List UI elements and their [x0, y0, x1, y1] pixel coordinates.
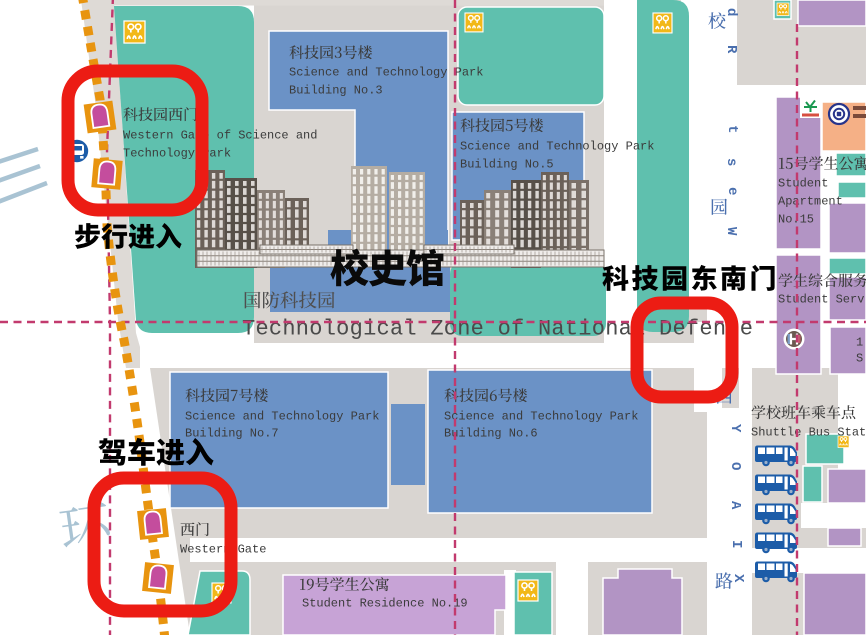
svg-text:Western Gate: Western Gate — [180, 543, 266, 557]
svg-text:Student Serv: Student Serv — [778, 293, 864, 307]
svg-text:Y: Y — [727, 424, 743, 433]
svg-text:S: S — [856, 352, 863, 366]
svg-text:I: I — [728, 540, 744, 548]
svg-text:1: 1 — [856, 336, 863, 350]
svg-text:Science and Technology Park: Science and Technology Park — [444, 410, 638, 424]
svg-text:Student: Student — [778, 177, 828, 191]
svg-text:Apartment: Apartment — [778, 195, 843, 209]
svg-text:Western Gate of Science and: Western Gate of Science and — [123, 129, 317, 143]
svg-text:Shuttle Bus Stat: Shuttle Bus Stat — [751, 426, 866, 440]
svg-text:Building No.3: Building No.3 — [289, 84, 383, 98]
svg-text:t: t — [724, 125, 740, 133]
svg-text:Building No.6: Building No.6 — [444, 427, 538, 441]
svg-text:d: d — [723, 8, 739, 16]
svg-text:A: A — [727, 501, 743, 510]
svg-text:R: R — [723, 45, 739, 54]
svg-text:Technological Zone of National: Technological Zone of National Defence — [242, 317, 753, 342]
svg-text:e: e — [724, 187, 740, 195]
svg-text:s: s — [723, 158, 739, 166]
svg-text:Building No.5: Building No.5 — [460, 158, 554, 172]
svg-text:Student Residence No.19: Student Residence No.19 — [302, 597, 468, 611]
svg-text:W: W — [723, 227, 739, 236]
svg-text:O: O — [727, 462, 743, 470]
svg-text:Science and Technology Park: Science and Technology Park — [460, 140, 654, 154]
svg-text:Technology Park: Technology Park — [123, 147, 231, 161]
svg-text:Science and Technology Park: Science and Technology Park — [185, 410, 379, 424]
svg-text:X: X — [730, 574, 746, 583]
svg-text:Building No.7: Building No.7 — [185, 427, 279, 441]
